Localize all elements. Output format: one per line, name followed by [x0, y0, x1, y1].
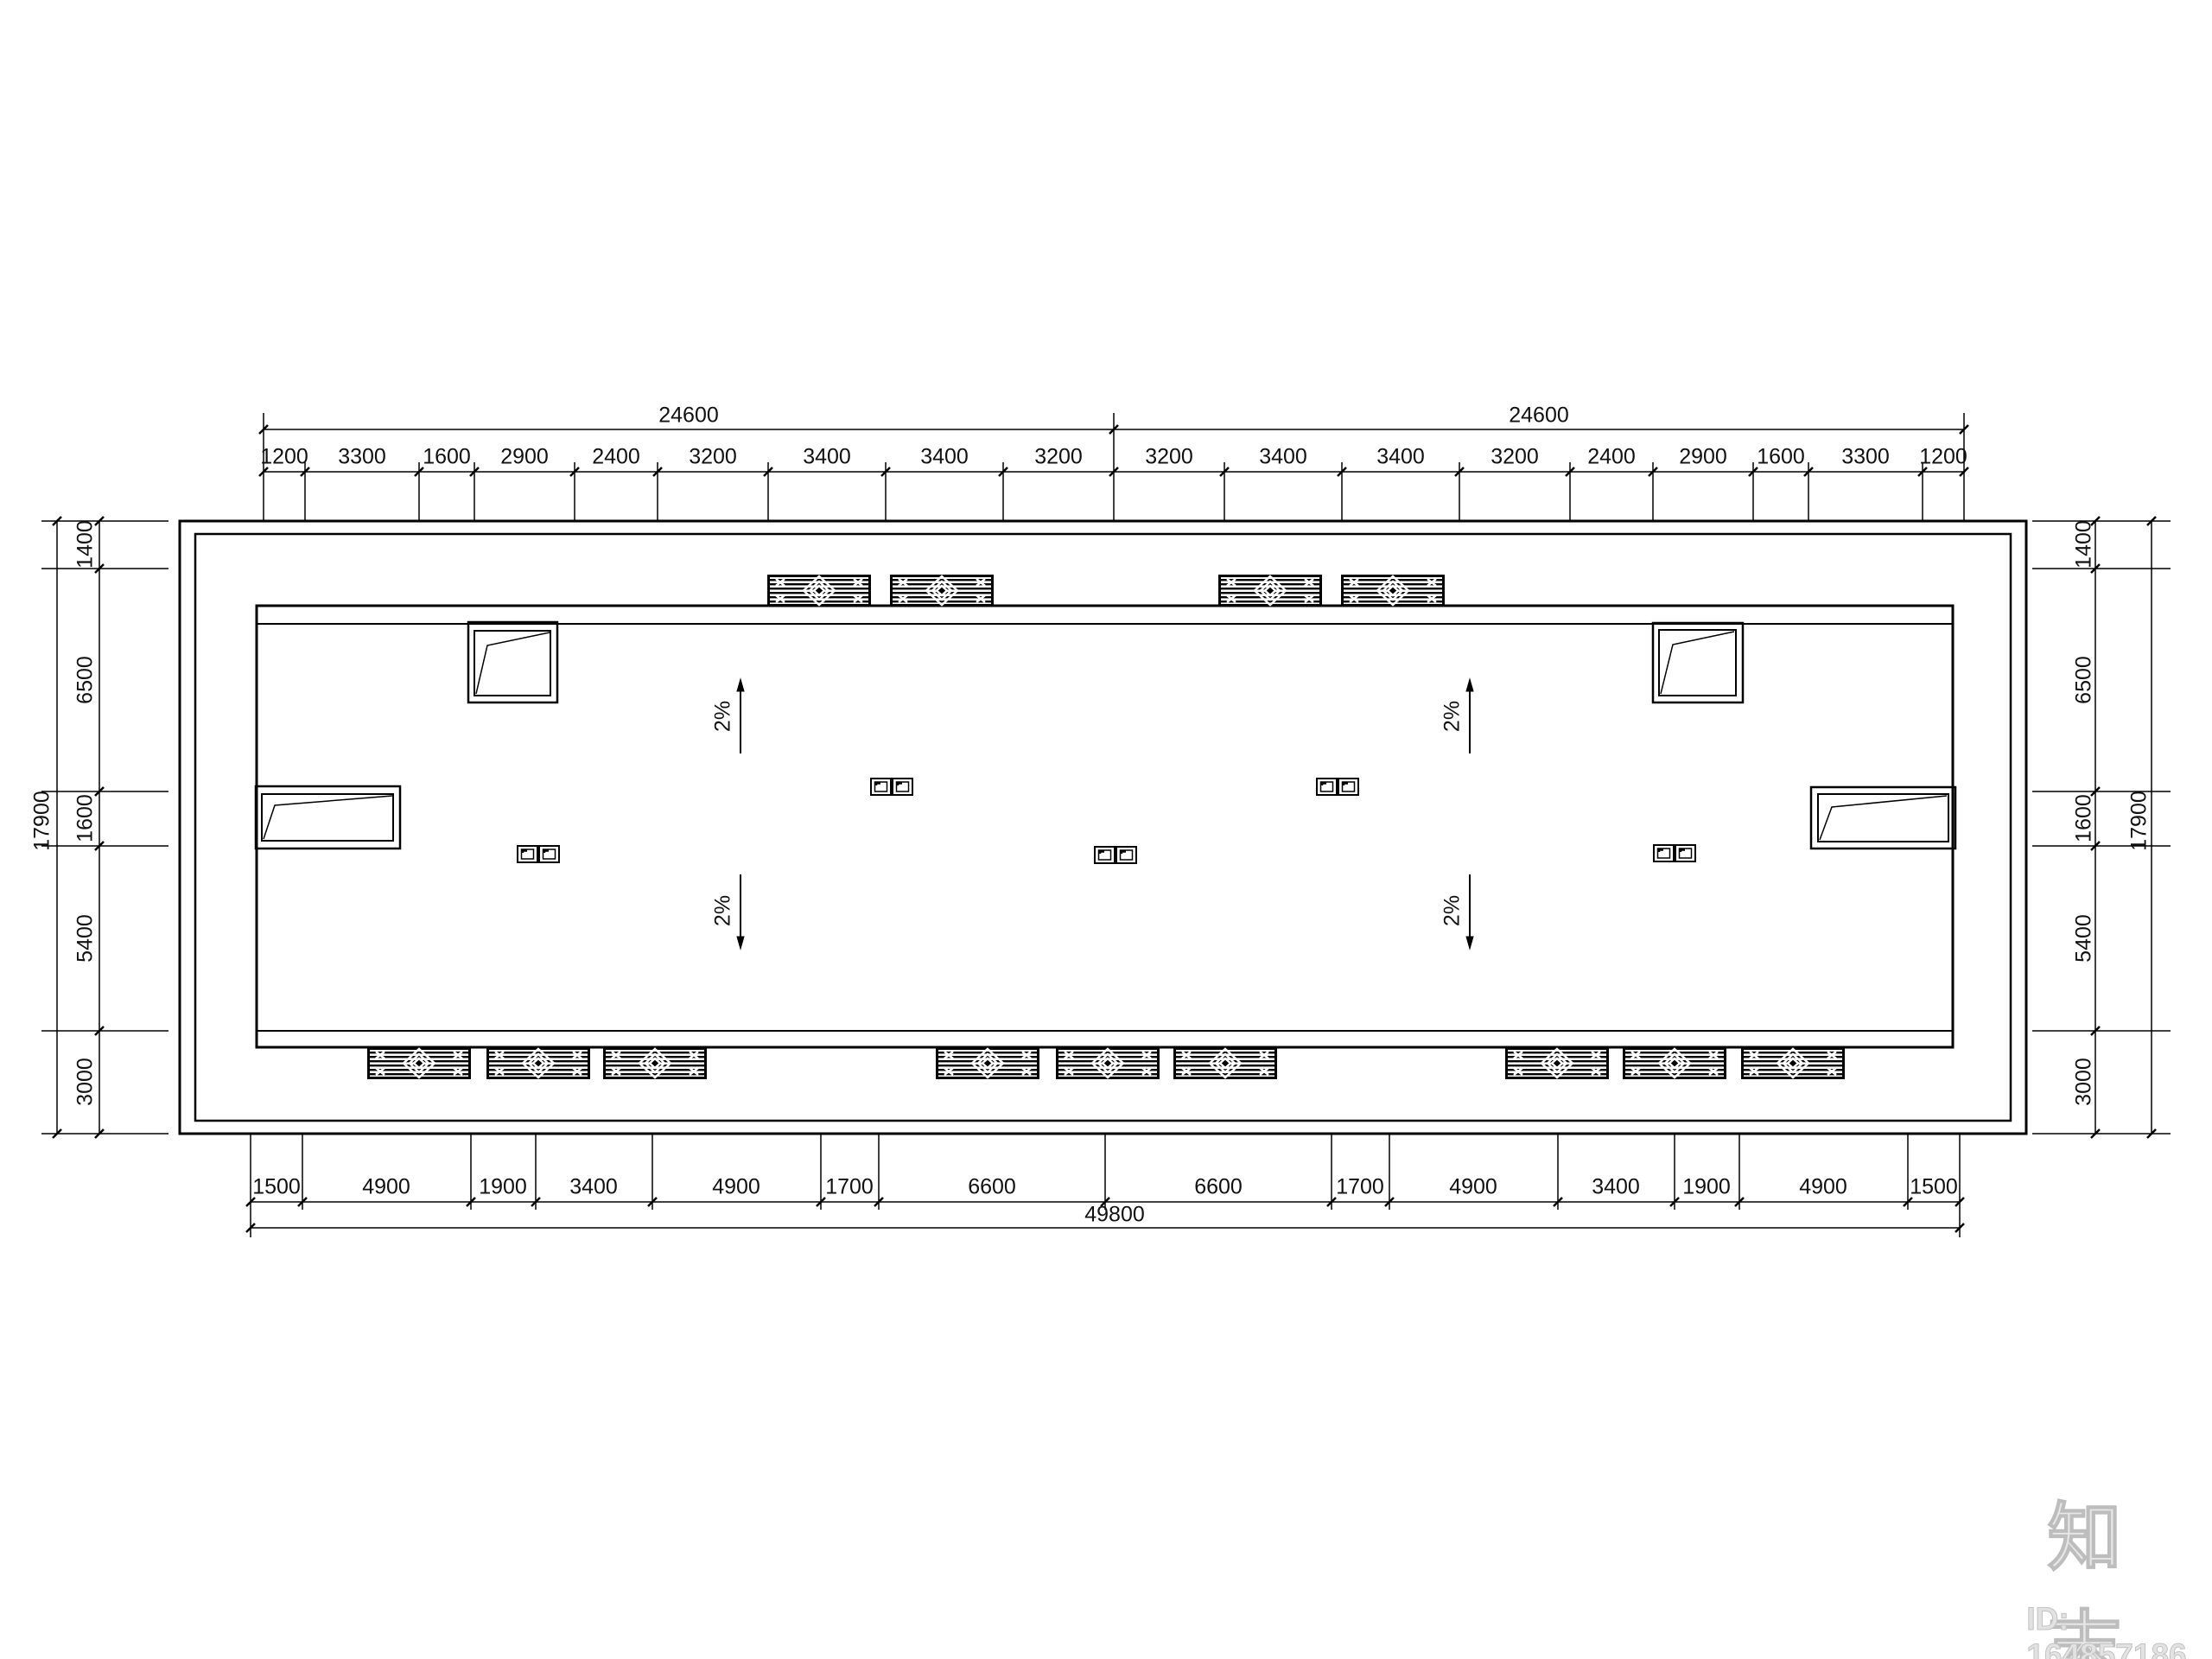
dim-label: 1600: [2072, 794, 2097, 842]
skylight-mid-left: [256, 786, 400, 849]
dim-label: 1900: [479, 1175, 527, 1200]
vent-grille: [369, 1049, 470, 1078]
dim-label: 3400: [803, 445, 851, 470]
dim-label: 3400: [920, 445, 969, 470]
skylight-mid-right: [1811, 787, 1955, 849]
dim-label: 2400: [1587, 445, 1636, 470]
dim-label: 3200: [1034, 445, 1083, 470]
dim-label: 4900: [1449, 1175, 1497, 1200]
dim-left-overall: 17900: [30, 791, 55, 851]
slope-arrows: [737, 679, 1473, 949]
dim-label: 1200: [260, 445, 308, 470]
dim-label: 1600: [423, 445, 471, 470]
dim-bottom-overall: 49800: [1084, 1203, 1145, 1228]
drain-pair: [1317, 779, 1358, 795]
dim-label: 3000: [2072, 1058, 2097, 1106]
dim-label: 3300: [338, 445, 386, 470]
dim-label: 3200: [1145, 445, 1193, 470]
dim-label: 1600: [73, 794, 99, 842]
dim-top-overall-right: 24600: [1509, 404, 1569, 429]
dim-label: 1400: [2072, 520, 2097, 569]
dim-label: 4900: [362, 1175, 410, 1200]
dim-label: 4900: [1799, 1175, 1847, 1200]
dim-top-overall-left: 24600: [658, 404, 719, 429]
watermark-id: ID: 164857186: [2026, 1601, 2186, 1659]
vent-grille: [769, 576, 870, 606]
drain-pair: [1654, 845, 1695, 861]
slope-label: 2%: [1440, 701, 1465, 732]
dim-label: 3400: [1376, 445, 1425, 470]
dim-label: 1600: [1757, 445, 1805, 470]
roof-plan-linework: [0, 0, 2212, 1659]
dim-label: 6500: [73, 656, 99, 704]
dim-label: 3000: [73, 1058, 99, 1106]
dim-label: 2900: [500, 445, 549, 470]
slope-label: 2%: [711, 701, 736, 732]
dimension-ticks: [53, 425, 2156, 1232]
dimension-lines: [41, 413, 2171, 1237]
dim-label: 1500: [1910, 1175, 1958, 1200]
roof-slab: [257, 606, 1953, 1047]
vent-grille: [1220, 576, 1321, 606]
dim-label: 1500: [252, 1175, 301, 1200]
dim-right-overall: 17900: [2127, 791, 2152, 851]
vent-grille: [1058, 1049, 1159, 1078]
vent-grille: [1175, 1049, 1276, 1078]
roof-plan-canvas: 24600 24600 1200 3300 1600 2900 2400 320…: [0, 0, 2212, 1659]
dim-label: 3400: [1259, 445, 1307, 470]
dim-label: 2400: [592, 445, 640, 470]
vent-grille: [1343, 576, 1444, 606]
skylight-top-left: [468, 622, 557, 702]
vent-grille: [1743, 1049, 1844, 1078]
dim-label: 5400: [2072, 914, 2097, 963]
slope-label: 2%: [1440, 895, 1465, 926]
vent-grille: [1624, 1049, 1726, 1078]
dim-label: 6500: [2072, 656, 2097, 704]
vent-grille: [1507, 1049, 1608, 1078]
dim-label: 1700: [1336, 1175, 1384, 1200]
dim-label: 1400: [73, 520, 99, 569]
roof-drains: [518, 779, 1695, 863]
dim-label: 1200: [1919, 445, 1967, 470]
drain-pair: [518, 846, 559, 862]
dim-label: 1700: [825, 1175, 874, 1200]
vent-grille: [605, 1049, 706, 1078]
skylight-top-right: [1653, 623, 1743, 702]
dim-label: 6600: [968, 1175, 1016, 1200]
extension-lines-left: [41, 521, 168, 1134]
vent-grille: [938, 1049, 1039, 1078]
drain-pair: [1095, 847, 1136, 863]
slope-label: 2%: [711, 895, 736, 926]
dim-label: 2900: [1679, 445, 1727, 470]
skylight-hatches: [256, 622, 1955, 849]
vent-grille: [488, 1049, 589, 1078]
vent-grilles: [369, 576, 1844, 1078]
dim-label: 3200: [689, 445, 737, 470]
dim-label: 3300: [1841, 445, 1890, 470]
dim-label: 4900: [712, 1175, 760, 1200]
dim-label: 3400: [1592, 1175, 1640, 1200]
parapet-outline: [180, 521, 2026, 1134]
vent-grille: [892, 576, 993, 606]
drain-pair: [871, 779, 912, 795]
dim-label: 3200: [1491, 445, 1539, 470]
dim-label: 3400: [569, 1175, 618, 1200]
dim-label: 5400: [73, 914, 99, 963]
dim-label: 1900: [1682, 1175, 1731, 1200]
dim-label: 6600: [1194, 1175, 1243, 1200]
